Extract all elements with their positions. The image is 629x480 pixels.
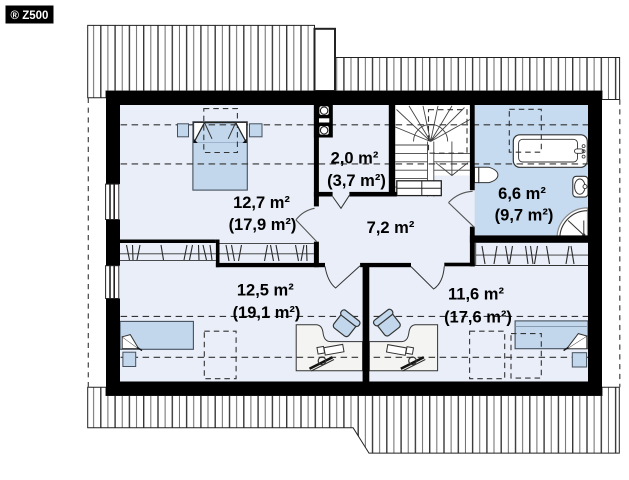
svg-text:(19,1 m²): (19,1 m²): [233, 304, 301, 322]
svg-text:6,6 m²: 6,6 m²: [498, 185, 546, 203]
svg-text:(17,9 m²): (17,9 m²): [229, 216, 297, 234]
svg-text:11,6 m²: 11,6 m²: [448, 286, 504, 304]
svg-text:(17,6 m²): (17,6 m²): [444, 308, 512, 326]
svg-text:12,5 m²: 12,5 m²: [237, 281, 294, 299]
svg-text:(3,7 m²): (3,7 m²): [327, 172, 386, 190]
svg-text:® Z500: ® Z500: [11, 10, 49, 22]
svg-text:(9,7 m²): (9,7 m²): [495, 207, 554, 225]
svg-text:2,0 m²: 2,0 m²: [331, 149, 379, 167]
svg-text:12,7 m²: 12,7 m²: [233, 194, 290, 212]
svg-text:7,2 m²: 7,2 m²: [367, 219, 415, 237]
